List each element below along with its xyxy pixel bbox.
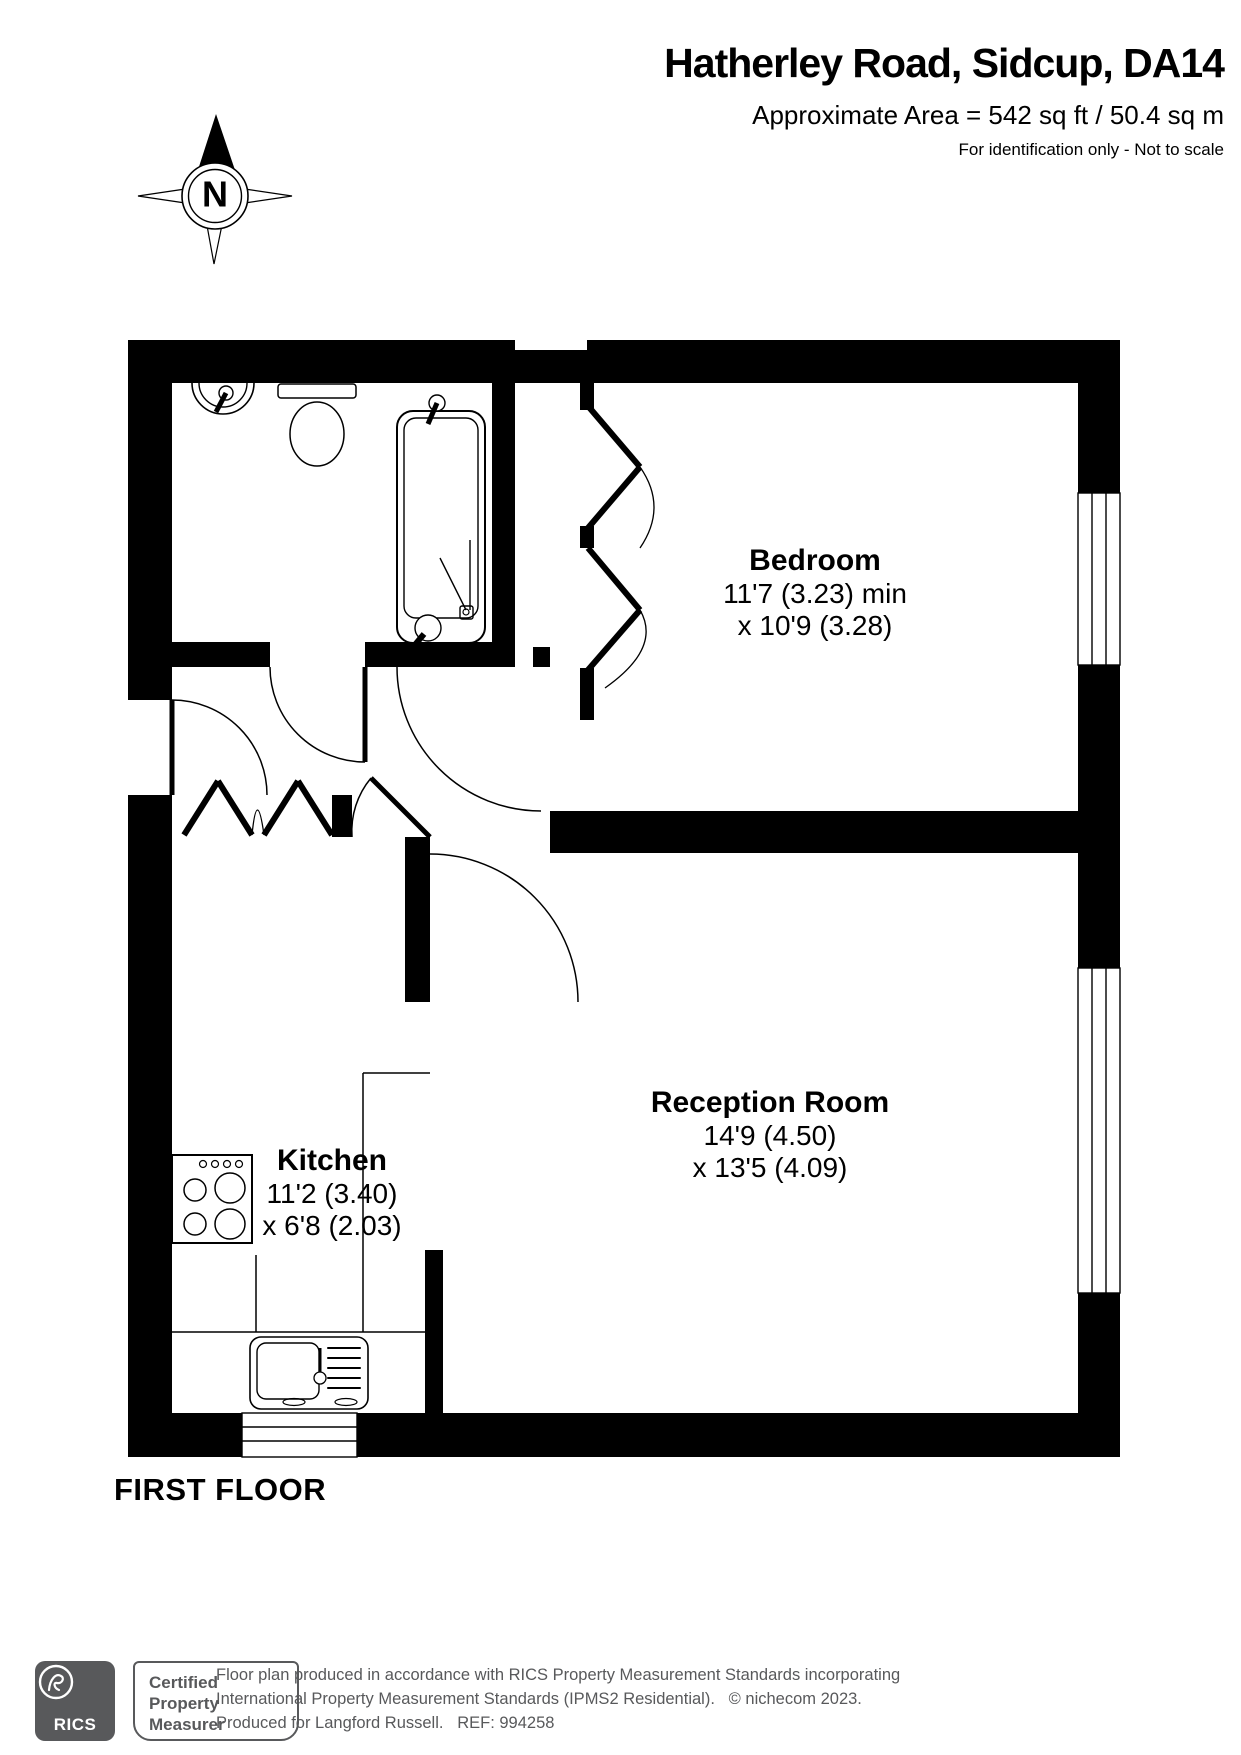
wall-bath-south-west: [172, 642, 270, 667]
bedroom-name: Bedroom: [723, 544, 907, 578]
wall-top: [128, 340, 1120, 383]
closet-stub-bottom: [580, 668, 594, 720]
wall-bath-closet: [492, 383, 515, 647]
reception-name: Reception Room: [651, 1086, 889, 1120]
bathroom-door: [270, 667, 365, 762]
wall-hall-south-stub: [332, 795, 352, 837]
rics-logo: RICS: [35, 1661, 115, 1741]
rics-wordmark: RICS: [54, 1715, 97, 1735]
kitchen-dim1: 11'2 (3.40): [262, 1178, 401, 1210]
kitchen-label: Kitchen 11'2 (3.40) x 6'8 (2.03): [262, 1144, 401, 1242]
kitchen-sink: [250, 1337, 368, 1409]
wall-left-upper: [128, 340, 172, 700]
bedroom-label: Bedroom 11'7 (3.23) min x 10'9 (3.28): [723, 544, 907, 642]
scale-note: For identification only - Not to scale: [664, 139, 1224, 160]
bedroom-window: [1078, 493, 1120, 665]
plan-header: Hatherley Road, Sidcup, DA14 Approximate…: [664, 38, 1224, 160]
hall-cupboard-doors: [184, 781, 332, 835]
footer: RICS Certified Property Measurer Floor p…: [0, 1655, 1241, 1745]
wall-bedroom-reception: [550, 811, 1078, 853]
disclaimer-line-1: Floor plan produced in accordance with R…: [216, 1663, 900, 1687]
bedroom-door: [397, 667, 541, 811]
disclaimer-line-3: Produced for Langford Russell. REF: 9942…: [216, 1711, 900, 1735]
wall-divider-lower: [425, 1250, 443, 1413]
bedroom-dim2: x 10'9 (3.28): [723, 610, 907, 642]
windows: [242, 493, 1120, 1457]
disclaimer-line-2: International Property Measurement Stand…: [216, 1687, 900, 1711]
bedroom-dim1: 11'7 (3.23) min: [723, 578, 907, 610]
toilet: [278, 384, 356, 466]
hob: [172, 1155, 252, 1243]
area-line: Approximate Area = 542 sq ft / 50.4 sq m: [664, 100, 1224, 130]
kitchen-dim2: x 6'8 (2.03): [262, 1210, 401, 1242]
compass-north-label: N: [202, 173, 228, 215]
kitchen-window: [242, 1413, 357, 1457]
kitchen-name: Kitchen: [262, 1144, 401, 1178]
wall-divider-upper: [405, 837, 430, 1002]
reception-window: [1078, 968, 1120, 1293]
closet-bifold-doors: [588, 406, 654, 688]
reception-dim1: 14'9 (4.50): [651, 1120, 889, 1152]
kitchen-door: [352, 778, 430, 837]
wall-left-lower: [128, 795, 172, 1457]
bathroom-fixtures: [192, 383, 485, 652]
bathtub: [397, 395, 485, 652]
reception-label: Reception Room 14'9 (4.50) x 13'5 (4.09): [651, 1086, 889, 1184]
closet-stub-mid: [580, 526, 594, 548]
page-title: Hatherley Road, Sidcup, DA14: [664, 38, 1224, 88]
floorplan-page: Hatherley Road, Sidcup, DA14 Approximate…: [0, 0, 1241, 1755]
wall-bath-south-east: [365, 642, 515, 667]
disclaimer: Floor plan produced in accordance with R…: [216, 1663, 900, 1735]
closet-stub-top: [580, 383, 594, 410]
floor-title: FIRST FLOOR: [114, 1472, 326, 1508]
wall-hall-stub: [533, 647, 550, 667]
reception-dim2: x 13'5 (4.09): [651, 1152, 889, 1184]
reception-door: [430, 854, 578, 1002]
walls: [128, 340, 1120, 1457]
wall-top-notch: [515, 340, 587, 350]
basin: [192, 383, 254, 414]
rics-lion-emblem-icon: [35, 1661, 77, 1707]
